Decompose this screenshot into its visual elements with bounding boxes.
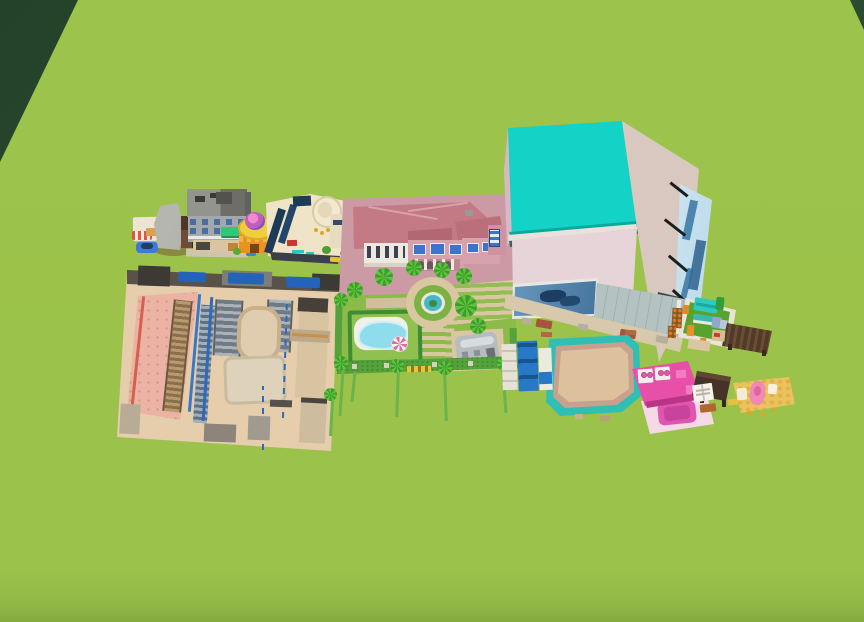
pergola-leg-2 — [762, 350, 766, 356]
navy-block-top — [293, 196, 311, 207]
cup-white-1 — [737, 388, 748, 401]
blue-mat-2[interactable] — [228, 272, 264, 284]
tray-brown — [700, 403, 717, 413]
sidewalk-pad-1 — [522, 317, 533, 324]
blue-mat-3[interactable] — [286, 276, 320, 288]
palm-canopy-3 — [434, 262, 450, 278]
pillar-orange-2 — [687, 325, 695, 337]
annex-striped-sign — [489, 229, 500, 247]
dome-door — [250, 244, 259, 253]
bush-small-2 — [322, 246, 331, 254]
dome-ball[interactable] — [245, 212, 265, 230]
frame1-dot-2 — [647, 372, 653, 378]
apartment-vent-1 — [195, 196, 205, 202]
palm-canopy-8 — [470, 318, 486, 334]
bottom-block-1 — [204, 423, 237, 442]
palm-canopy-2 — [406, 260, 422, 276]
palm-canopy-6 — [334, 293, 348, 307]
mansion-window-2 — [430, 243, 445, 255]
palm-canopy-4 — [456, 268, 472, 284]
center-platform[interactable] — [223, 355, 287, 405]
chimney — [465, 210, 473, 216]
bleacher-blue-band — [539, 372, 552, 384]
flower-bed-2 — [668, 326, 677, 338]
gate-post-1 — [352, 364, 357, 369]
fountain-center — [429, 300, 437, 307]
loop-ramp[interactable] — [236, 305, 282, 363]
taxi-yellow — [330, 257, 340, 263]
right-lower-wall — [299, 397, 327, 443]
pink-block-1 — [676, 370, 687, 379]
pergola-leg-1 — [728, 344, 732, 350]
porch-column-5 — [451, 259, 454, 270]
gold-dot-2 — [320, 231, 324, 235]
palm-canopy-hedge-1 — [334, 356, 348, 370]
left-low-wall — [119, 403, 141, 434]
court-bench-2 — [625, 330, 636, 336]
skatepark-corner-block-left — [138, 265, 171, 286]
colonnade-windows — [367, 246, 405, 258]
bush-small-1 — [233, 248, 241, 255]
bleacher-mid-blue[interactable] — [517, 341, 539, 392]
game-viewport[interactable] — [0, 0, 864, 622]
umbrella[interactable] — [391, 336, 408, 352]
colonnade-base — [364, 263, 408, 267]
counter-leg-2 — [722, 400, 726, 407]
side-yellow-bits — [728, 398, 739, 405]
path-left — [366, 298, 408, 309]
court-bit-1 — [575, 414, 583, 419]
mansion-window-1 — [413, 244, 426, 255]
sidewalk-pad-2 — [578, 323, 589, 330]
bottom-dark-strip — [270, 400, 292, 408]
frame2-dot-2 — [664, 370, 670, 376]
right-wall — [295, 311, 329, 398]
gold-dot-1 — [314, 228, 318, 232]
statue-green — [715, 297, 724, 311]
palm-canopy-7 — [455, 295, 477, 317]
storefront-window — [196, 242, 210, 250]
palm-canopy-hedge-3 — [438, 361, 452, 375]
teal-sign-1 — [292, 250, 304, 253]
stand-red — [714, 333, 720, 338]
crumb-3 — [772, 408, 776, 412]
palm-canopy-5 — [347, 282, 363, 298]
court-bench-1 — [541, 332, 552, 338]
blue-mat-1[interactable] — [178, 272, 206, 283]
pinkshop-rug-inner — [663, 405, 690, 422]
crumb-2 — [761, 413, 766, 417]
car-roof — [141, 243, 153, 249]
annex-window — [333, 220, 343, 225]
cup-white-2 — [768, 384, 778, 395]
red-accent — [287, 240, 297, 246]
palm-canopy-hedge-2 — [390, 359, 404, 373]
gate-post-3 — [432, 362, 437, 367]
gate-yellow[interactable] — [407, 366, 431, 372]
apartment-skylight — [216, 192, 232, 204]
mansion-window-3 — [449, 244, 462, 255]
palm-canopy-1 — [375, 268, 393, 286]
gate-post-2 — [384, 363, 389, 368]
park-palm-canopy — [324, 388, 337, 401]
court-bit-2 — [600, 416, 610, 421]
bottom-block-2 — [248, 416, 271, 441]
porch-column-2 — [424, 259, 427, 270]
crumb-1 — [747, 411, 752, 415]
gate-post-4 — [468, 361, 473, 366]
right-wing-window-1 — [467, 243, 479, 253]
pillar-orange-1 — [683, 305, 690, 314]
apartment-window-row-1 — [190, 219, 244, 225]
bleacher-left-white — [501, 344, 518, 390]
